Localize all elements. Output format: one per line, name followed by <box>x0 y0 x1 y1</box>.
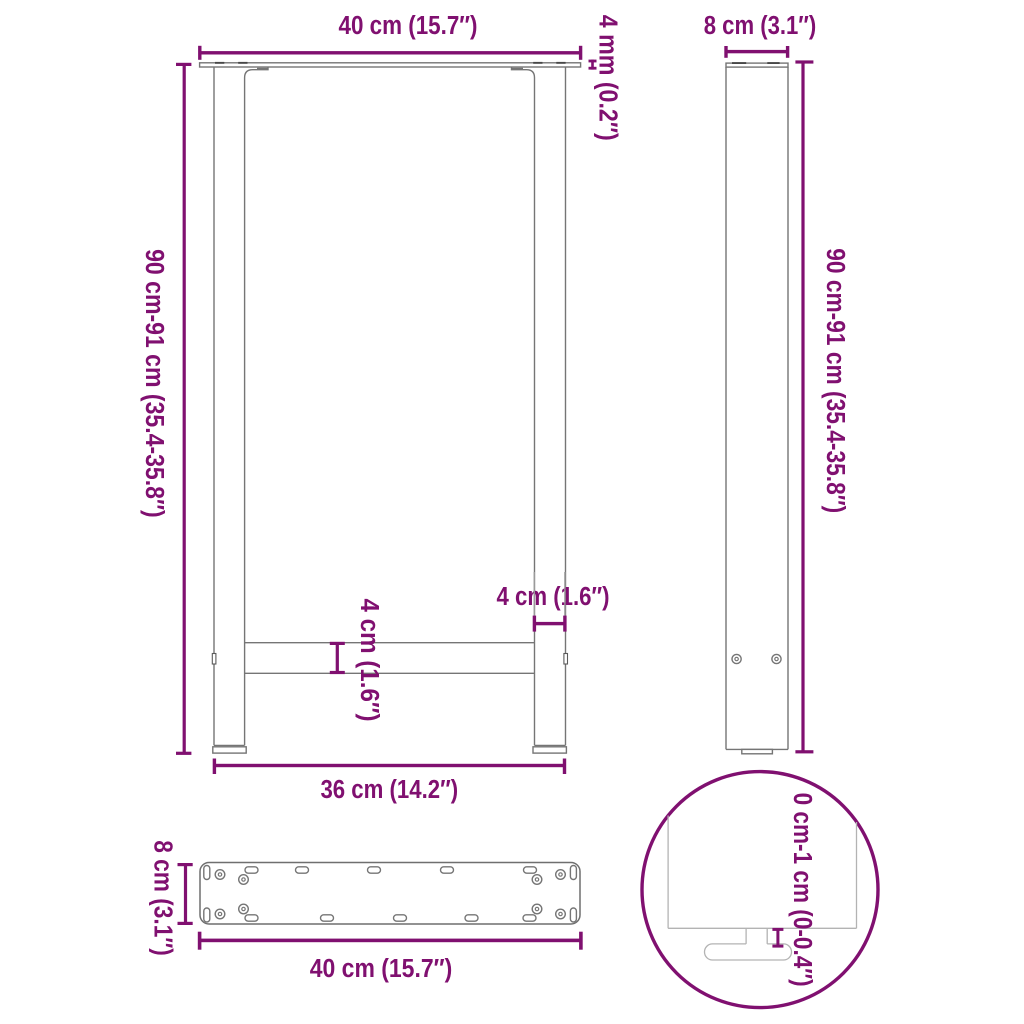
svg-text:4 cm (1.6″): 4 cm (1.6″) <box>497 583 610 611</box>
svg-text:36 cm (14.2″): 36 cm (14.2″) <box>320 776 458 804</box>
svg-text:40 cm (15.7″): 40 cm (15.7″) <box>339 12 478 40</box>
svg-text:4 cm (1.6″): 4 cm (1.6″) <box>355 599 383 722</box>
svg-text:0 cm-1 cm (0-0.4″): 0 cm-1 cm (0-0.4″) <box>788 793 816 987</box>
svg-text:4 mm (0.2″): 4 mm (0.2″) <box>594 15 622 141</box>
svg-text:40 cm (15.7″): 40 cm (15.7″) <box>310 955 453 983</box>
svg-text:8 cm (3.1″): 8 cm (3.1″) <box>704 12 817 40</box>
svg-text:90 cm-91 cm (35.4-35.8″): 90 cm-91 cm (35.4-35.8″) <box>821 248 849 513</box>
svg-text:8 cm (3.1″): 8 cm (3.1″) <box>148 840 176 956</box>
svg-text:90 cm-91 cm (35.4-35.8″): 90 cm-91 cm (35.4-35.8″) <box>140 249 168 518</box>
